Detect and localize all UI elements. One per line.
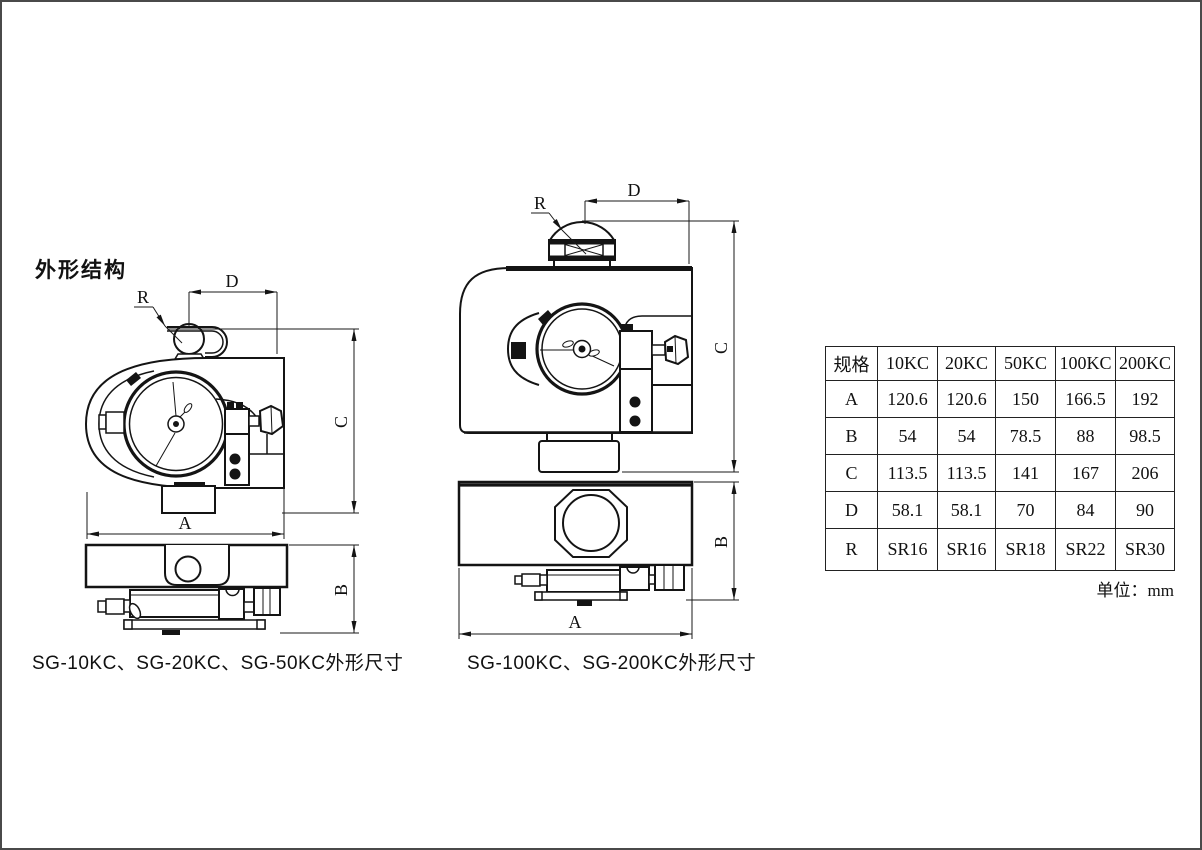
- table-cell: 167: [1056, 455, 1116, 492]
- table-cell: 88: [1056, 418, 1116, 455]
- table-cell: 113.5: [878, 455, 938, 492]
- table-header-cell: 200KC: [1116, 347, 1175, 381]
- table-cell: 113.5: [938, 455, 996, 492]
- dim-label-a-right: A: [569, 612, 582, 632]
- left-front-view: R D C A: [86, 271, 359, 539]
- table-cell: C: [826, 455, 878, 492]
- table-cell: 120.6: [878, 381, 938, 418]
- table-header-cell: 10KC: [878, 347, 938, 381]
- drawing-sheet: 外形结构: [0, 0, 1202, 850]
- table-row: D 58.1 58.1 70 84 90: [826, 492, 1175, 529]
- table-cell: 120.6: [938, 381, 996, 418]
- table-row: A 120.6 120.6 150 166.5 192: [826, 381, 1175, 418]
- table-row: C 113.5 113.5 141 167 206: [826, 455, 1175, 492]
- right-front-view: R D C: [460, 180, 739, 472]
- table-cell: 58.1: [878, 492, 938, 529]
- slide-assembly-icon: [515, 565, 684, 606]
- dim-label-d-left: D: [226, 271, 239, 291]
- slide-assembly-icon: [98, 588, 280, 635]
- table-cell: SR22: [1056, 529, 1116, 571]
- table-cell: 70: [996, 492, 1056, 529]
- table-header-row: 规格 10KC 20KC 50KC 100KC 200KC: [826, 347, 1175, 381]
- left-drawing-caption: SG-10KC、SG-20KC、SG-50KC外形尺寸: [32, 648, 403, 675]
- table-cell: 90: [1116, 492, 1175, 529]
- dim-c-left: C: [282, 329, 359, 513]
- table-cell: B: [826, 418, 878, 455]
- base-pedestal: [162, 482, 215, 513]
- table-cell: A: [826, 381, 878, 418]
- right-drawing-caption: SG-100KC、SG-200KC外形尺寸: [467, 648, 756, 675]
- dim-b-left: B: [280, 545, 359, 633]
- table-cell: 78.5: [996, 418, 1056, 455]
- dim-label-c-right: C: [711, 342, 731, 354]
- table-header-cell: 规格: [826, 347, 878, 381]
- table-cell: SR30: [1116, 529, 1175, 571]
- dim-label-d-right: D: [628, 180, 641, 200]
- dim-label-r-right: R: [534, 193, 546, 213]
- right-bottom-view: B A: [459, 482, 739, 639]
- unit-note: 单位：mm: [1080, 576, 1174, 601]
- table-cell: 206: [1116, 455, 1175, 492]
- table-cell: SR18: [996, 529, 1056, 571]
- dim-label-c-left: C: [331, 416, 351, 428]
- table-cell: SR16: [938, 529, 996, 571]
- dome-load-button-icon: [549, 222, 615, 267]
- table-row: B 54 54 78.5 88 98.5: [826, 418, 1175, 455]
- table-cell: 54: [938, 418, 996, 455]
- table-cell: 54: [878, 418, 938, 455]
- side-knob-icon: [511, 342, 526, 359]
- table-cell: R: [826, 529, 878, 571]
- table-cell: D: [826, 492, 878, 529]
- table-cell: 150: [996, 381, 1056, 418]
- table-cell: 166.5: [1056, 381, 1116, 418]
- dim-label-a-left: A: [179, 513, 192, 533]
- table-cell: 58.1: [938, 492, 996, 529]
- table-cell: 192: [1116, 381, 1175, 418]
- dim-label-r-left: R: [137, 287, 149, 307]
- table-header-cell: 100KC: [1056, 347, 1116, 381]
- table-cell: 98.5: [1116, 418, 1175, 455]
- load-hole-icon: [563, 495, 619, 551]
- table-header-cell: 20KC: [938, 347, 996, 381]
- table-header-cell: 50KC: [996, 347, 1056, 381]
- dimension-table: 规格 10KC 20KC 50KC 100KC 200KC A 120.6 12…: [825, 346, 1175, 571]
- dial-gauge-icon: [537, 304, 627, 394]
- table-cell: 141: [996, 455, 1056, 492]
- table-row: R SR16 SR16 SR18 SR22 SR30: [826, 529, 1175, 571]
- table-cell: SR16: [878, 529, 938, 571]
- dim-label-b-right: B: [711, 536, 731, 548]
- dial-gauge-icon: [124, 372, 228, 476]
- table-cell: 84: [1056, 492, 1116, 529]
- left-bottom-view: B: [86, 545, 359, 635]
- dim-label-b-left: B: [331, 584, 351, 596]
- dim-b-right: B: [686, 482, 739, 600]
- base-pedestal: [539, 433, 619, 472]
